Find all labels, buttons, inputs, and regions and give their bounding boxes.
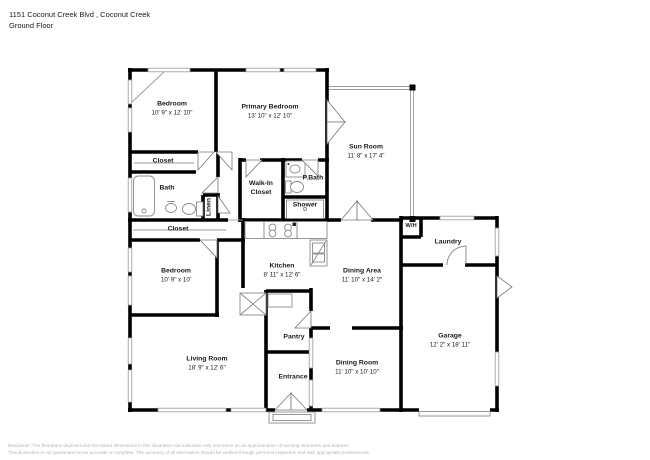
room-label-closet-top: Closet — [153, 158, 174, 167]
disclaimer: Disclaimer: The floorplans depicted and … — [8, 443, 370, 457]
room-label-pantry: Pantry — [283, 334, 304, 343]
room-label-bedroom-1: Bedroom 10' 9" x 12' 10" — [152, 101, 193, 118]
room-label-linen: Linen — [206, 198, 215, 216]
disclaimer-line-2: This illustration is not guaranteed to b… — [8, 450, 370, 457]
room-label-living-room: Living Room 18' 9" x 12' 6" — [186, 356, 227, 373]
room-label-p-bath: P.Bath — [303, 175, 324, 184]
room-label-laundry: Laundry — [435, 239, 462, 248]
room-label-walk-in-closet: Walk-In Closet — [243, 180, 279, 198]
disclaimer-line-1: Disclaimer: The floorplans depicted and … — [8, 443, 370, 450]
room-label-entrance: Entrance — [278, 374, 307, 383]
room-label-bedroom-2: Bedroom 10' 9" x 10' — [161, 268, 191, 285]
room-label-garage: Garage 12' 2" x 18' 11" — [430, 333, 470, 350]
room-label-shower: Shower — [293, 202, 318, 211]
room-label-closet-mid: Closet — [168, 226, 189, 235]
room-label-kitchen: Kitchen 8' 11" x 12' 6" — [264, 263, 301, 280]
floor-plan-page: { "header": { "address": "1151 Coconut C… — [0, 0, 650, 460]
room-label-sun-room: Sun Room 11' 8" x 17' 4" — [348, 144, 385, 161]
room-labels: Bedroom 10' 9" x 12' 10" Primary Bedroom… — [0, 0, 650, 460]
room-label-primary-bedroom: Primary Bedroom 13' 10" x 12' 10" — [241, 104, 298, 121]
room-label-bath: Bath — [159, 185, 174, 194]
room-label-dining-area: Dining Area 11' 10" x 14' 2" — [342, 268, 382, 285]
room-label-water-heater: W/H — [405, 223, 416, 231]
room-label-dining-room: Dining Room 11' 10" x 10' 10" — [335, 360, 379, 377]
